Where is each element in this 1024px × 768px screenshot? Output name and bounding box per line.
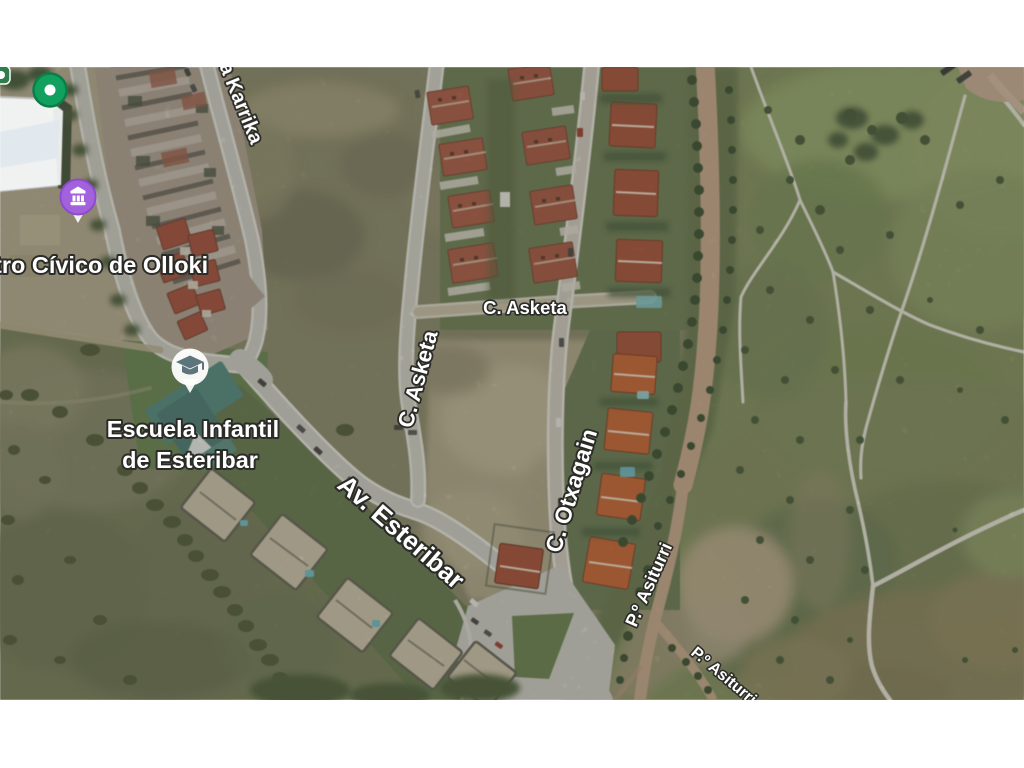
svg-text:Escuela Infantil: Escuela Infantil <box>107 416 279 442</box>
svg-text:de Esteribar: de Esteribar <box>122 447 258 473</box>
svg-text:tro Cívico de Olloki: tro Cívico de Olloki <box>0 252 208 278</box>
svg-text:C. Asketa: C. Asketa <box>483 297 567 318</box>
